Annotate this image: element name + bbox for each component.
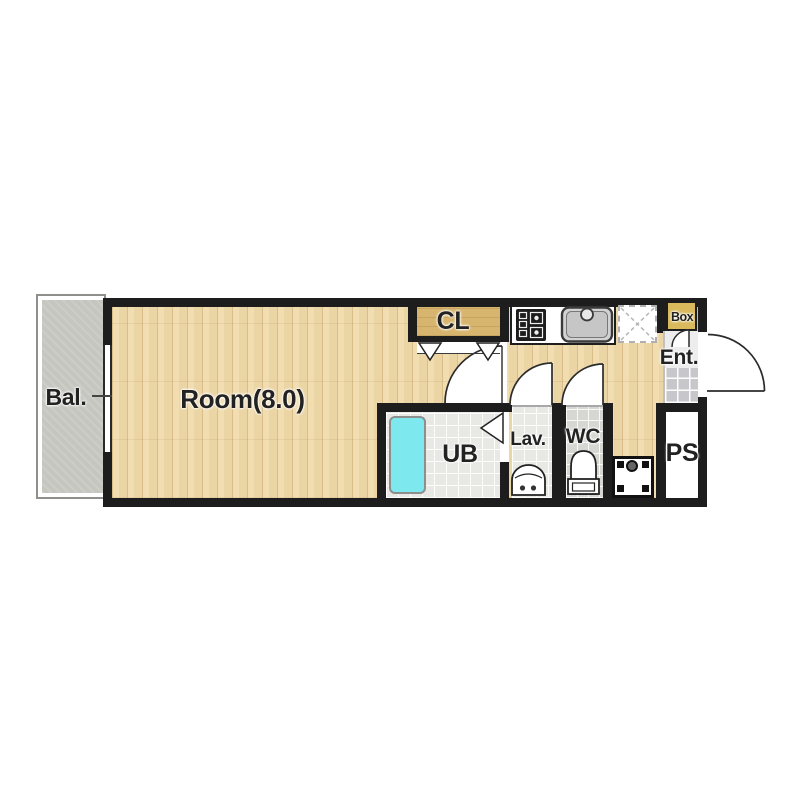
stove-icon bbox=[516, 309, 546, 341]
toilet-icon bbox=[568, 451, 599, 494]
balcony-label: Bal. bbox=[40, 386, 92, 409]
room-door-arc-icon bbox=[445, 346, 502, 403]
lavatory-door-arc-icon bbox=[510, 363, 552, 405]
entrance-door-arc-icon bbox=[707, 335, 765, 392]
wc-label: WC bbox=[561, 426, 605, 447]
washing-machine-pan-icon bbox=[614, 458, 653, 497]
unit-bath-label: UB bbox=[432, 442, 488, 467]
closet-bifold-door-icon bbox=[417, 343, 500, 360]
bath-folding-door-icon bbox=[481, 413, 503, 443]
lavatory-label: Lav. bbox=[504, 430, 552, 449]
entrance-label: Ent. bbox=[650, 347, 708, 368]
refrigerator-x-mark bbox=[621, 308, 654, 340]
washbasin-icon bbox=[512, 465, 545, 495]
pipe-space-label: PS bbox=[661, 441, 703, 466]
main-room-label: Room(8.0) bbox=[150, 386, 335, 412]
closet-label: CL bbox=[424, 309, 482, 334]
fixtures-overlay bbox=[0, 0, 800, 800]
toilet-door-arc-icon bbox=[562, 364, 603, 405]
shoe-box-label: Box bbox=[667, 311, 697, 324]
shoe-box-door-arc-icon bbox=[672, 330, 689, 347]
kitchen-sink-icon bbox=[562, 308, 612, 342]
floor-plan-page: Bal. Room(8.0) CL UB Lav. WC Ent. PS Box bbox=[0, 0, 800, 800]
